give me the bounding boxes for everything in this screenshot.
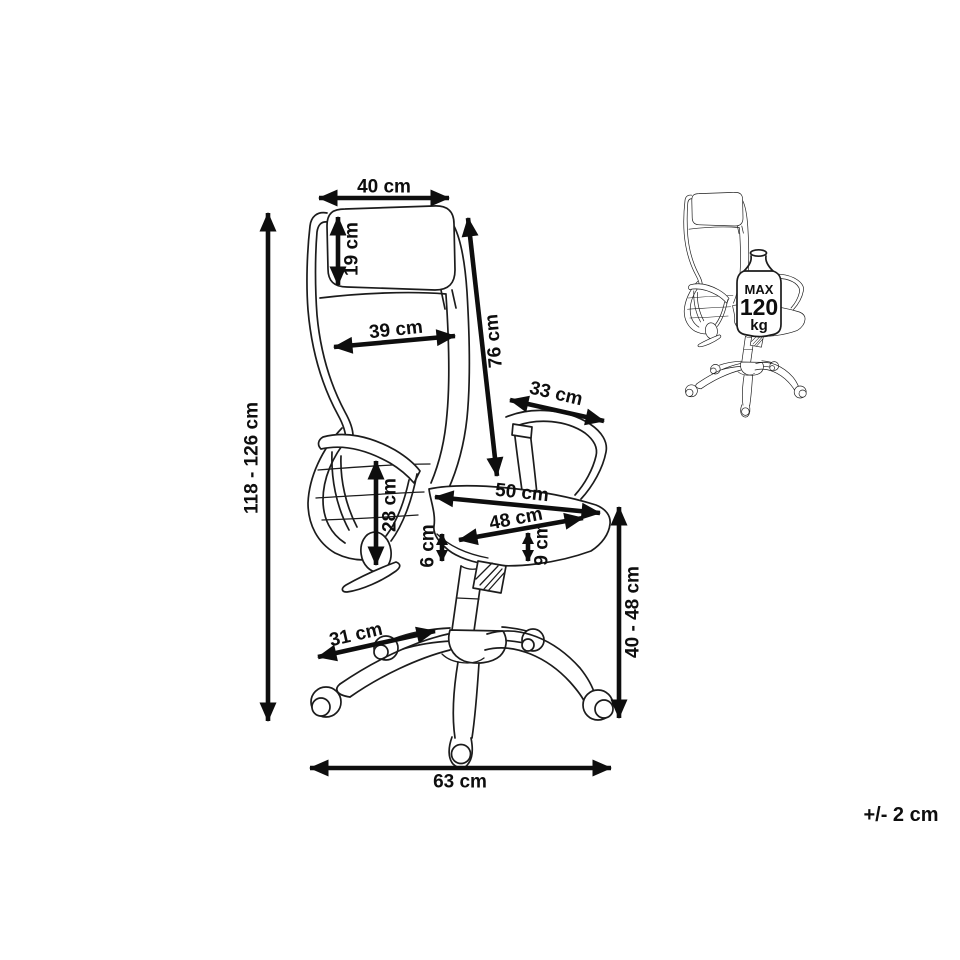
- dimension-backrest-height: 76 cm: [468, 218, 507, 476]
- dimension-base-width: 63 cm: [310, 768, 611, 793]
- dim-base-width-label: 63 cm: [433, 772, 487, 793]
- tolerance-note: +/- 2 cm: [863, 804, 938, 826]
- dim-headrest-width-label: 40 cm: [357, 177, 411, 198]
- diagram-canvas: MAX 120 kg 40 cm 19 cm 39 cm 76 cm 33 cm…: [0, 0, 960, 960]
- caster-front: [452, 745, 471, 764]
- dim-overall-height-label: 118 - 126 cm: [242, 402, 263, 514]
- chair-dimension-diagram: MAX 120 kg 40 cm 19 cm 39 cm 76 cm 33 cm…: [0, 0, 960, 960]
- gas-lift: [452, 561, 506, 631]
- dim-seat-height-label: 40 - 48 cm: [623, 566, 644, 658]
- dimension-seat-edge-thickness: 6 cm: [418, 524, 443, 567]
- dimension-seat-cushion-thickness: 9 cm: [528, 522, 553, 565]
- dim-headrest-height-label: 19 cm: [342, 222, 363, 276]
- office-chair-line-art: [307, 206, 613, 768]
- dimension-seat-height: 40 - 48 cm: [619, 507, 644, 718]
- dimension-backrest-width: 39 cm: [334, 317, 455, 347]
- dim-seat-edge-thickness-label: 6 cm: [418, 524, 439, 567]
- base-hub: [449, 630, 506, 663]
- height-adjust-knob: [473, 561, 506, 593]
- max-weight-unit: kg: [750, 317, 768, 334]
- dimension-armrest-length: 33 cm: [510, 378, 604, 421]
- dim-backrest-height-label: 76 cm: [481, 313, 507, 369]
- dim-seat-cushion-thickness-label: 9 cm: [532, 522, 553, 565]
- max-weight-symbol: MAX 120 kg: [737, 250, 781, 337]
- dimension-headrest-height: 19 cm: [338, 217, 363, 285]
- dimension-overall-height: 118 - 126 cm: [242, 213, 269, 721]
- dimension-headrest-width: 40 cm: [319, 177, 449, 199]
- dim-armrest-height-label: 28 cm: [380, 478, 401, 532]
